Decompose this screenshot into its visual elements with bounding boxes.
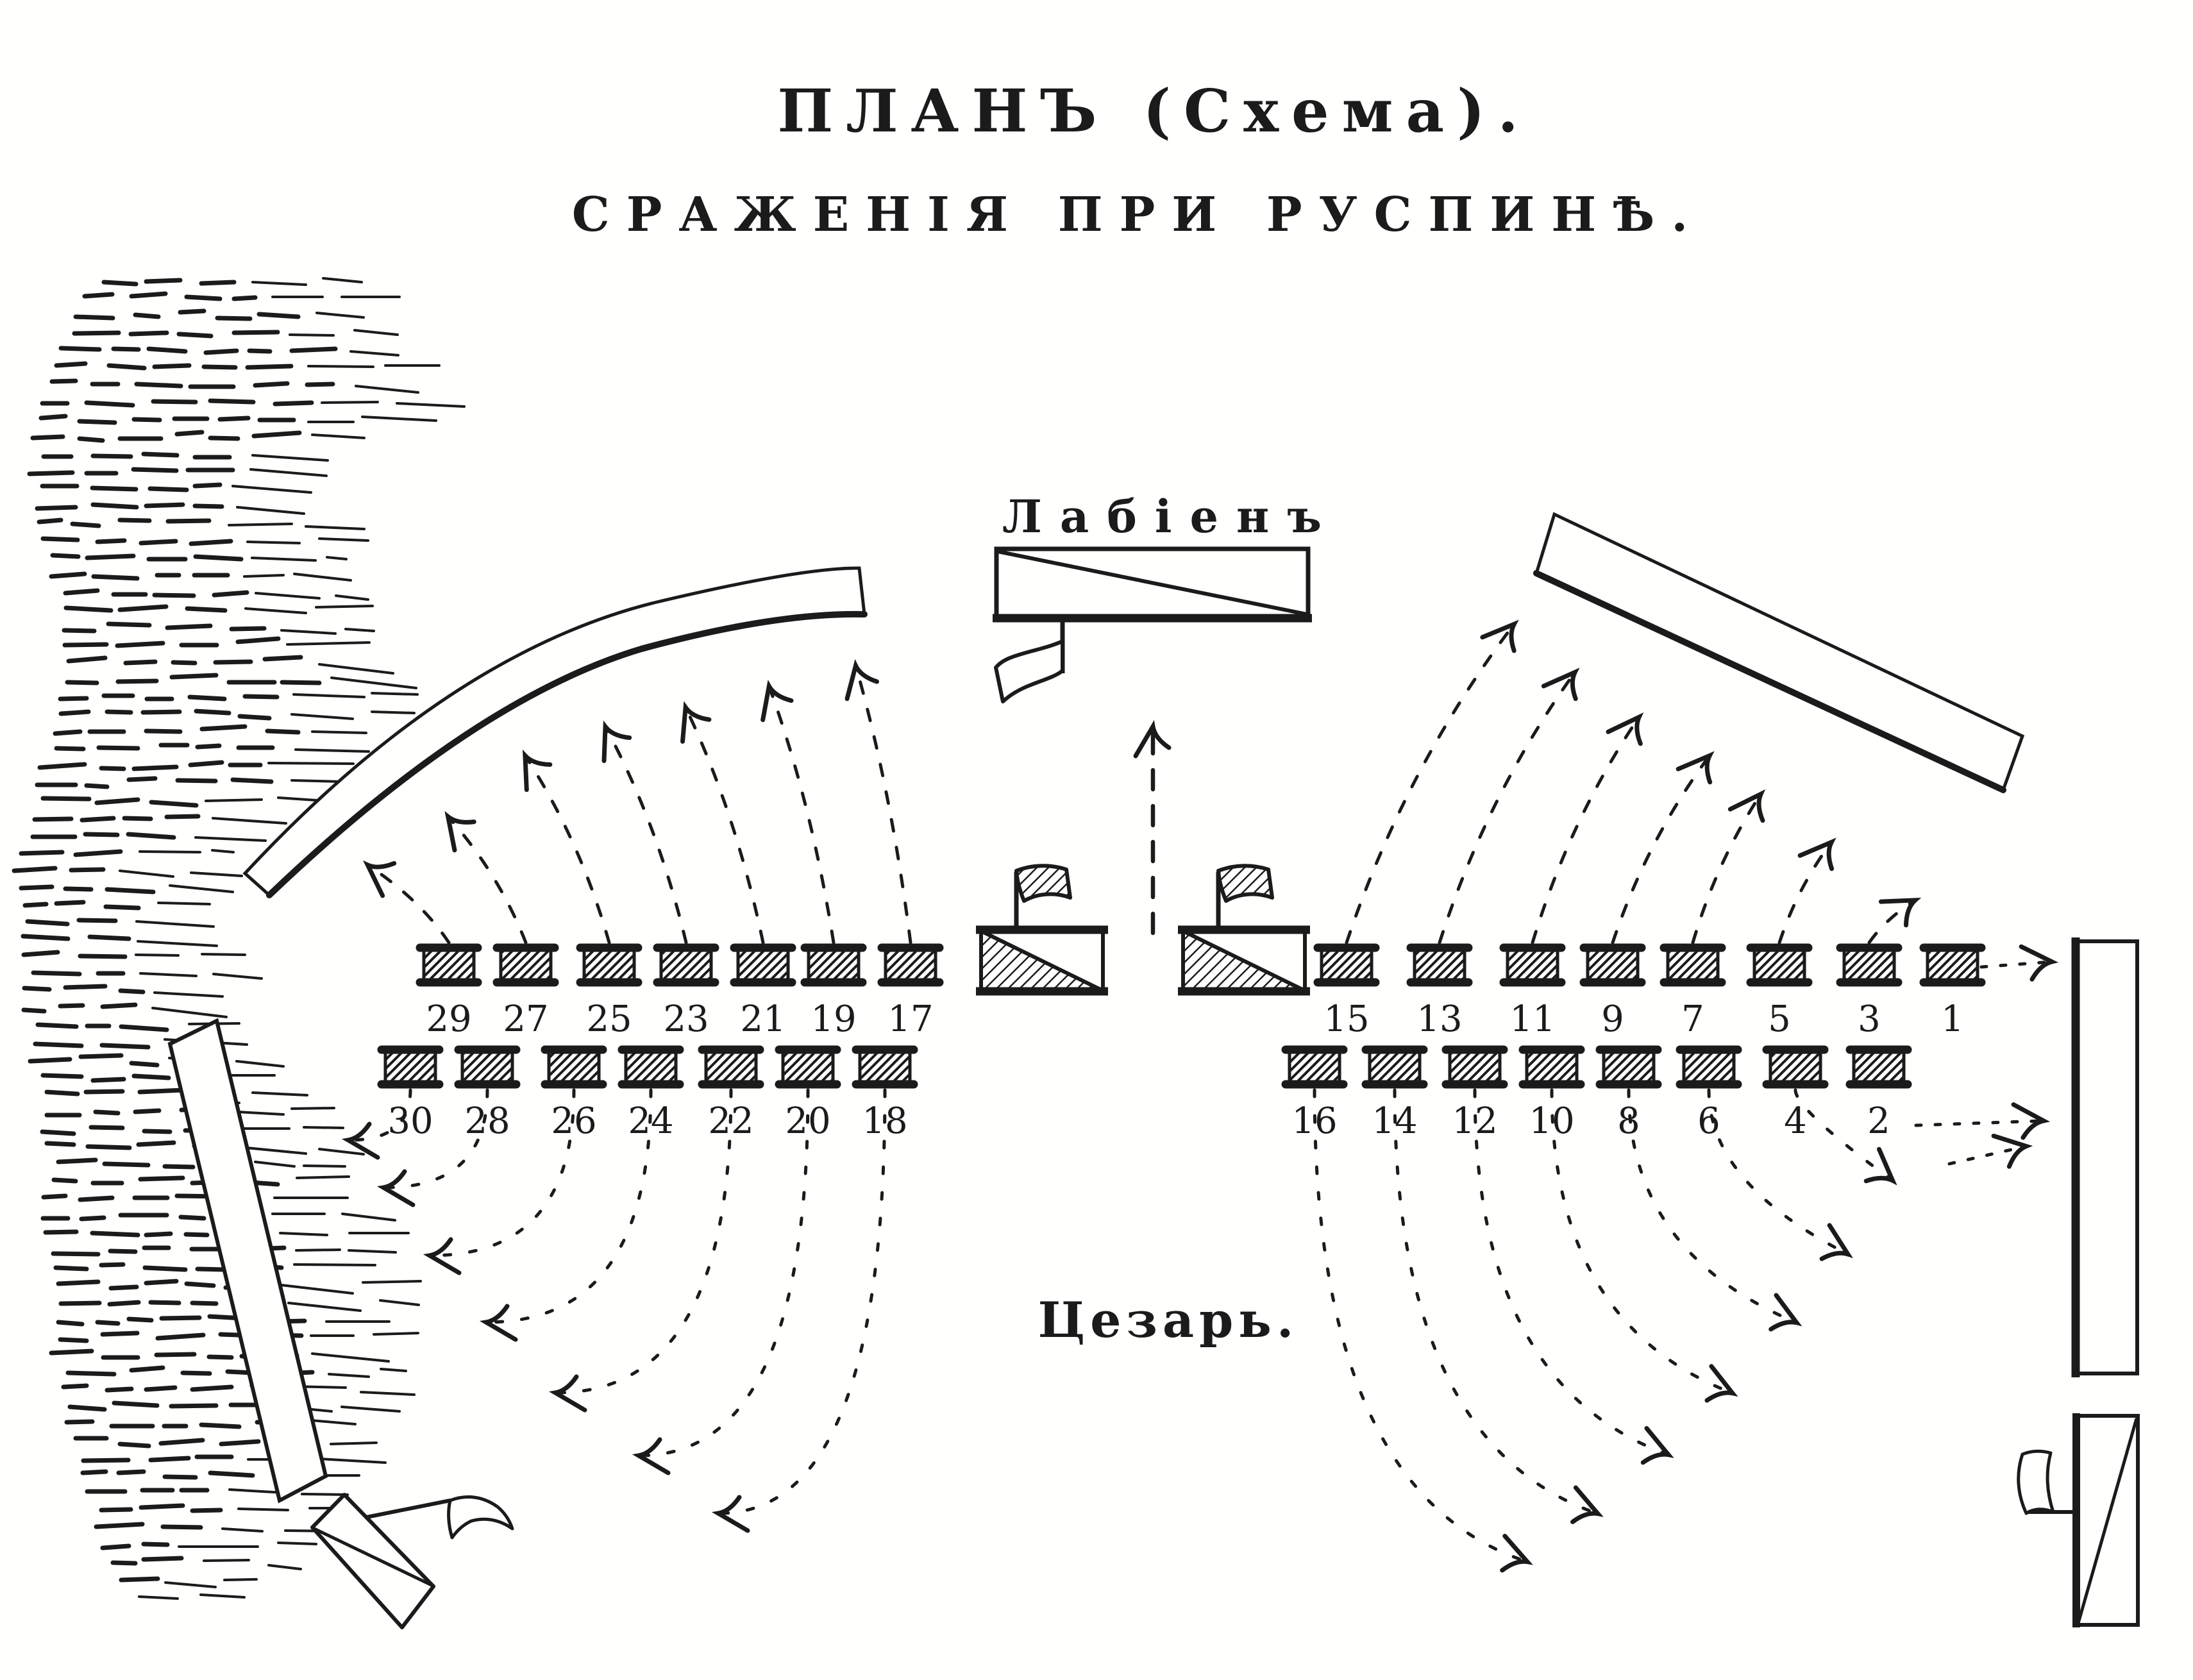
cohort-number: 3 xyxy=(1858,998,1881,1040)
plan-subtitle: СРАЖЕНІЯ ПРИ РУСПИНѢ. xyxy=(572,187,1704,242)
cohort-square xyxy=(1924,948,1981,982)
cohort-square xyxy=(1850,1050,1908,1084)
cohort-number: 16 xyxy=(1291,1100,1337,1142)
advance-arrow xyxy=(1869,901,1914,943)
advance-arrow xyxy=(1981,962,2051,967)
advance-arrow xyxy=(856,667,911,943)
cohort-square xyxy=(420,948,478,982)
cohort-square xyxy=(545,1050,603,1084)
advance-arrow xyxy=(369,866,449,943)
cohort-number: 18 xyxy=(862,1100,907,1142)
standard-flag-icon xyxy=(1218,866,1272,901)
labienus-label: Лабіенъ xyxy=(1002,490,1340,543)
cohort-number: 29 xyxy=(426,998,471,1040)
cohort-number: 22 xyxy=(708,1100,753,1142)
cohort-number: 23 xyxy=(663,998,709,1040)
advance-arrow xyxy=(719,1090,885,1513)
advance-arrow xyxy=(1440,673,1574,943)
advance-arrow xyxy=(1613,757,1709,943)
advance-arrow xyxy=(449,818,526,943)
labienus-flag-icon xyxy=(996,641,1063,701)
advance-arrow xyxy=(1779,843,1831,943)
cohort-square xyxy=(856,1050,914,1084)
cohort-number: 19 xyxy=(811,998,856,1040)
caesar-label: Цезарь. xyxy=(1038,1291,1299,1348)
cohort-square xyxy=(1286,1050,1343,1084)
advance-arrow xyxy=(1395,1090,1597,1513)
cohort-square xyxy=(497,948,555,982)
cohort-number: 24 xyxy=(628,1100,673,1142)
cohort-square xyxy=(458,1050,516,1084)
advance-arrow xyxy=(1315,1090,1526,1561)
cohort-square xyxy=(1411,948,1468,982)
advance-arrow xyxy=(769,687,834,943)
advance-arrow xyxy=(1916,1121,2042,1125)
cohort-square xyxy=(1767,1050,1824,1084)
cohort-number: 2 xyxy=(1867,1100,1890,1142)
plan-title: ПЛАНЪ (Схема). xyxy=(777,76,1531,146)
advance-arrow xyxy=(1693,795,1760,943)
cohort-square xyxy=(657,948,715,982)
cohort-number: 14 xyxy=(1372,1100,1417,1142)
left-rear-flag-pole xyxy=(367,1500,450,1517)
cohort-number: 15 xyxy=(1323,998,1369,1040)
cohort-number: 8 xyxy=(1617,1100,1640,1142)
cohort-square xyxy=(1584,948,1642,982)
cohort-number: 30 xyxy=(387,1100,433,1142)
cohort-number: 7 xyxy=(1681,998,1704,1040)
cohort-number: 27 xyxy=(503,998,548,1040)
cohort-square xyxy=(882,948,939,982)
cohort-square xyxy=(1366,1050,1424,1084)
right-angled-rampart-lower-edge xyxy=(1536,573,2003,790)
advance-arrow xyxy=(1709,1090,1847,1254)
cohort-square xyxy=(779,1050,837,1084)
left-rear-flag-icon xyxy=(449,1497,512,1538)
cohort-square xyxy=(382,1050,439,1084)
cohort-number: 28 xyxy=(464,1100,510,1142)
cohort-square xyxy=(580,948,638,982)
standard-flag-icon xyxy=(1016,866,1070,901)
right-tall-rampart xyxy=(2076,941,2137,1373)
cohort-number: 12 xyxy=(1452,1100,1497,1142)
advance-arrow xyxy=(640,1090,808,1456)
cohort-number: 4 xyxy=(1784,1100,1807,1142)
movement-arrows xyxy=(349,625,2051,1561)
battle-plan-page: ПЛАНЪ (Схема). СРАЖЕНІЯ ПРИ РУСПИНѢ. Лаб… xyxy=(0,0,2193,1680)
cohort-number: 5 xyxy=(1768,998,1791,1040)
cohort-number: 25 xyxy=(586,998,632,1040)
advance-arrow xyxy=(526,757,609,943)
cohort-number: 20 xyxy=(785,1100,830,1142)
battle-plan-figure: ПЛАНЪ (Схема). СРАЖЕНІЯ ПРИ РУСПИНѢ. Лаб… xyxy=(0,0,2193,1680)
cohort-square xyxy=(734,948,792,982)
cohort-number: 10 xyxy=(1529,1100,1574,1142)
cohort-square xyxy=(1664,948,1722,982)
cohort-square xyxy=(1504,948,1561,982)
cohort-number: 11 xyxy=(1509,998,1555,1040)
advance-arrow xyxy=(1347,625,1513,943)
advance-arrow xyxy=(1949,1147,2025,1164)
cohort-number: 6 xyxy=(1697,1100,1720,1142)
cohort-number: 26 xyxy=(551,1100,596,1142)
left-tilted-rampart xyxy=(170,1021,326,1500)
advance-arrow xyxy=(1533,718,1638,943)
cohort-square xyxy=(1840,948,1898,982)
cohort-number: 1 xyxy=(1941,998,1964,1040)
cohort-square xyxy=(1751,948,1808,982)
terrain-hachures xyxy=(14,278,464,1599)
cohort-number: 21 xyxy=(740,998,786,1040)
cohort-square xyxy=(622,1050,680,1084)
cohort-square xyxy=(1446,1050,1504,1084)
cohort-number: 17 xyxy=(887,998,933,1040)
advance-arrow xyxy=(1475,1090,1667,1454)
cohort-number: 13 xyxy=(1416,998,1462,1040)
cohort-number: 9 xyxy=(1601,998,1624,1040)
cohort-square xyxy=(1523,1050,1581,1084)
cohort-square xyxy=(805,948,862,982)
cohort-square xyxy=(702,1050,760,1084)
cohort-square xyxy=(1318,948,1375,982)
advance-arrow xyxy=(606,728,686,943)
right-rear-flag-icon xyxy=(2019,1451,2053,1513)
right-angled-rampart xyxy=(1536,514,2022,790)
advance-arrow xyxy=(686,709,763,943)
cohort-square xyxy=(1600,1050,1658,1084)
cohort-square xyxy=(1680,1050,1738,1084)
